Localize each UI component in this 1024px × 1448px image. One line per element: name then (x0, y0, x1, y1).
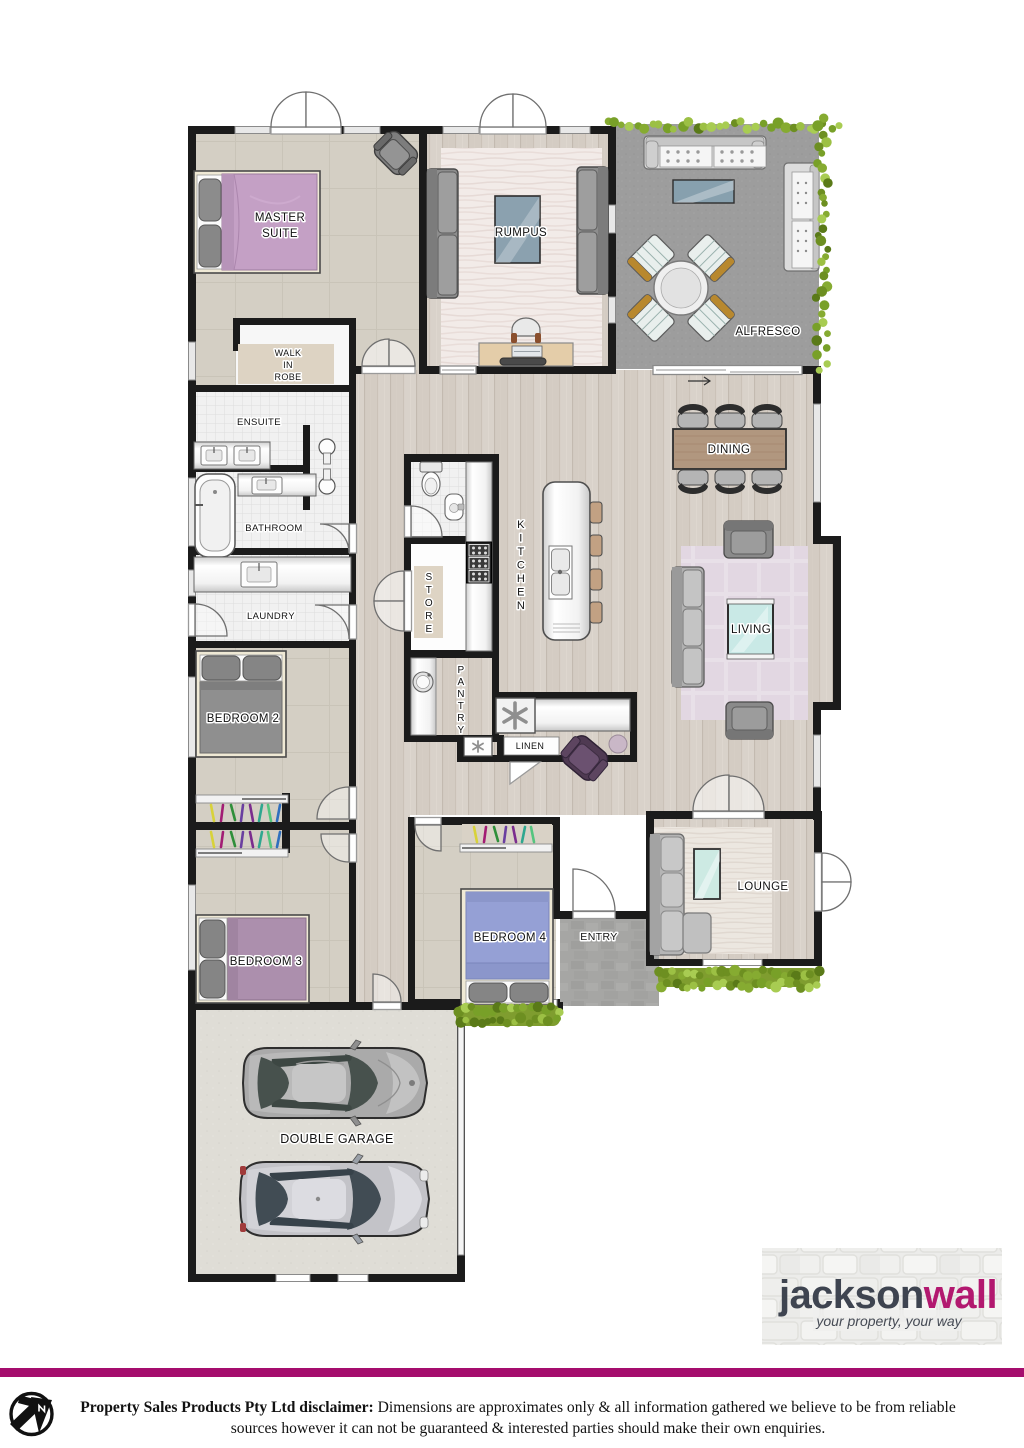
svg-text:C: C (517, 560, 525, 572)
svg-text:E: E (517, 587, 525, 599)
svg-text:T: T (458, 701, 465, 712)
svg-text:E: E (425, 624, 432, 635)
svg-text:BEDROOM 2: BEDROOM 2 (207, 713, 280, 725)
svg-text:K: K (517, 519, 525, 531)
svg-text:RUMPUS: RUMPUS (495, 227, 547, 239)
svg-text:MASTER: MASTER (255, 212, 305, 224)
svg-text:Property Sales Products Pty Lt: Property Sales Products Pty Ltd disclaim… (80, 1399, 956, 1416)
svg-text:Y: Y (457, 725, 464, 736)
svg-text:ENTRY: ENTRY (580, 931, 617, 943)
svg-text:T: T (517, 546, 524, 558)
svg-text:DOUBLE GARAGE: DOUBLE GARAGE (280, 1132, 394, 1146)
svg-text:N: N (517, 600, 525, 612)
svg-text:R: R (425, 611, 433, 622)
svg-text:ROBE: ROBE (274, 372, 301, 382)
svg-text:R: R (457, 713, 465, 724)
svg-text:ENSUITE: ENSUITE (237, 417, 281, 428)
svg-text:BATHROOM: BATHROOM (245, 523, 302, 534)
svg-text:A: A (457, 677, 464, 688)
svg-text:IN: IN (283, 360, 293, 370)
svg-text:H: H (517, 573, 525, 585)
svg-text:O: O (425, 598, 433, 609)
svg-text:BEDROOM 3: BEDROOM 3 (230, 956, 303, 968)
svg-text:P: P (457, 665, 464, 676)
svg-text:BEDROOM 4: BEDROOM 4 (474, 932, 547, 944)
svg-text:DINING: DINING (708, 444, 751, 456)
svg-text:ALFRESCO: ALFRESCO (735, 326, 800, 338)
svg-text:WALK: WALK (275, 348, 302, 358)
svg-text:N: N (457, 689, 465, 700)
svg-text:SUITE: SUITE (262, 228, 298, 240)
svg-text:LIVING: LIVING (731, 624, 771, 636)
svg-text:LAUNDRY: LAUNDRY (247, 611, 295, 622)
svg-text:sources however it can not be: sources however it can not be guaranteed… (231, 1420, 826, 1437)
svg-text:I: I (519, 533, 522, 545)
svg-text:LINEN: LINEN (516, 741, 545, 751)
svg-text:LOUNGE: LOUNGE (738, 881, 789, 893)
svg-text:S: S (425, 572, 432, 583)
svg-text:T: T (426, 585, 433, 596)
svg-text:your property, your way: your property, your way (815, 1313, 962, 1329)
